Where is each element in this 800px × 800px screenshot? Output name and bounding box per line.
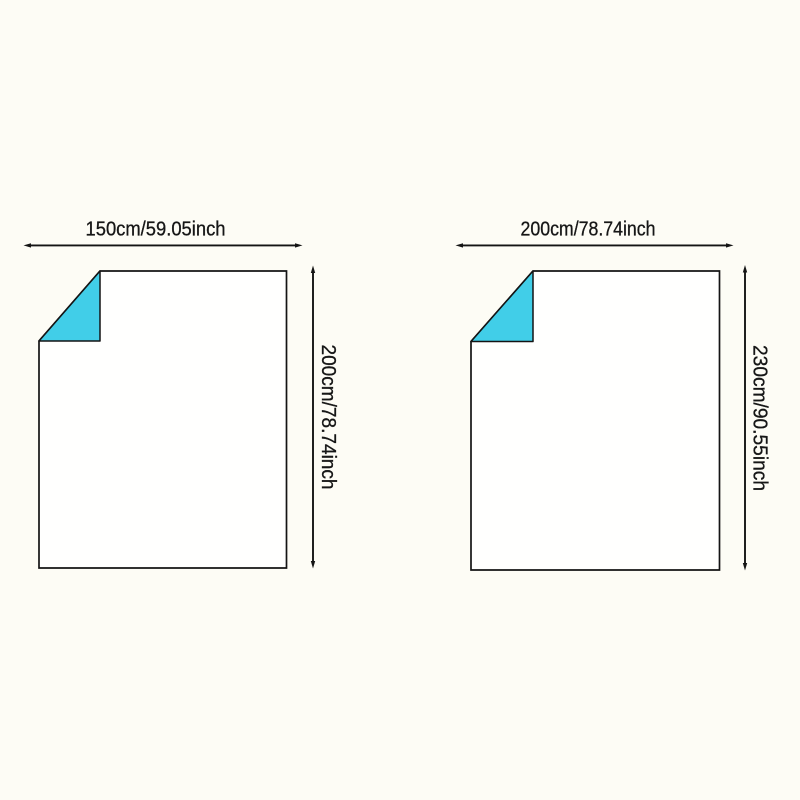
svg-text:150cm/59.05inch: 150cm/59.05inch — [86, 218, 226, 240]
svg-text:200cm/78.74inch: 200cm/78.74inch — [521, 219, 656, 241]
svg-text:200cm/78.74inch: 200cm/78.74inch — [317, 345, 339, 490]
svg-text:230cm/90.55inch: 230cm/90.55inch — [749, 345, 771, 491]
